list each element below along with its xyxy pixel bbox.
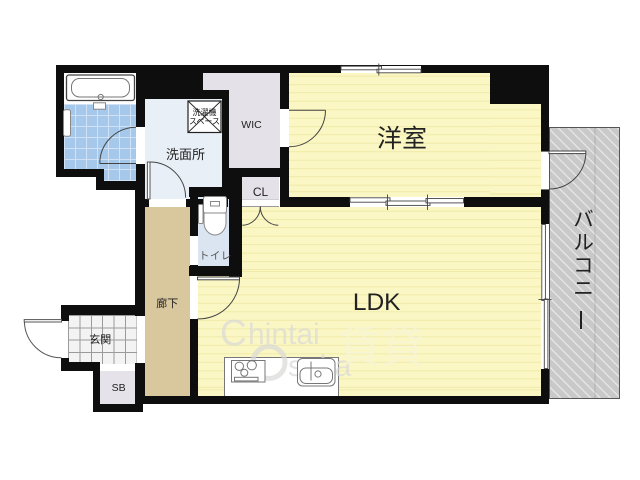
svg-text:賃貸: 賃貸 — [338, 324, 424, 372]
svg-text:hintai: hintai — [248, 318, 320, 351]
svg-text:C: C — [220, 313, 247, 354]
